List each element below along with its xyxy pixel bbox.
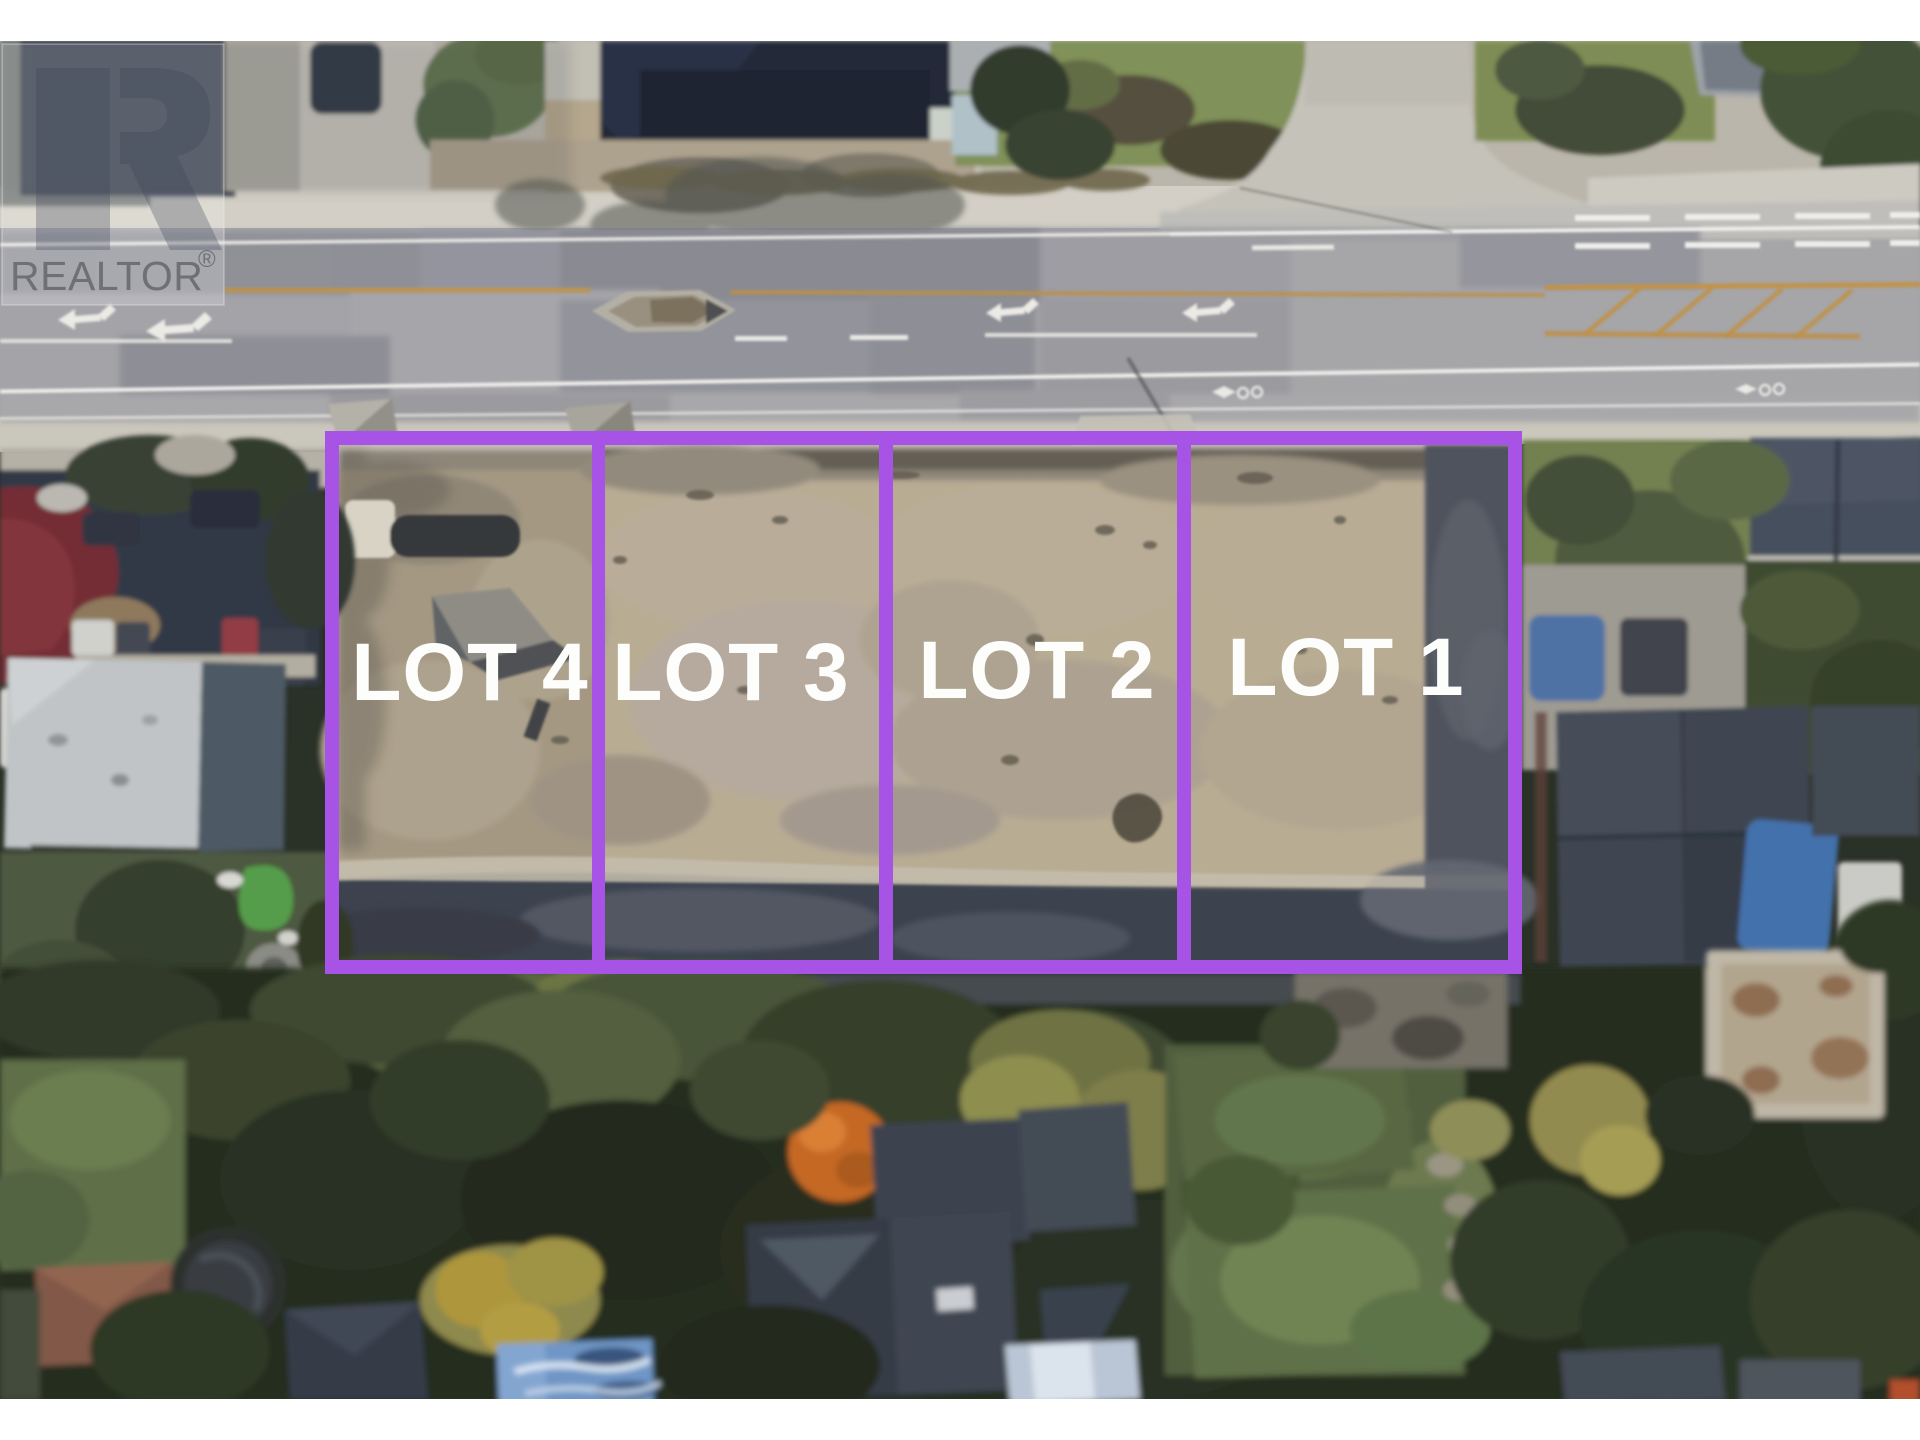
svg-text:REALTOR: REALTOR [10, 253, 203, 299]
svg-text:LOT 1: LOT 1 [1227, 622, 1464, 713]
svg-text:LOT 2: LOT 2 [918, 625, 1155, 716]
svg-text:LOT 3: LOT 3 [612, 627, 849, 718]
svg-text:LOT 4: LOT 4 [351, 627, 588, 718]
svg-text:®: ® [198, 246, 216, 273]
